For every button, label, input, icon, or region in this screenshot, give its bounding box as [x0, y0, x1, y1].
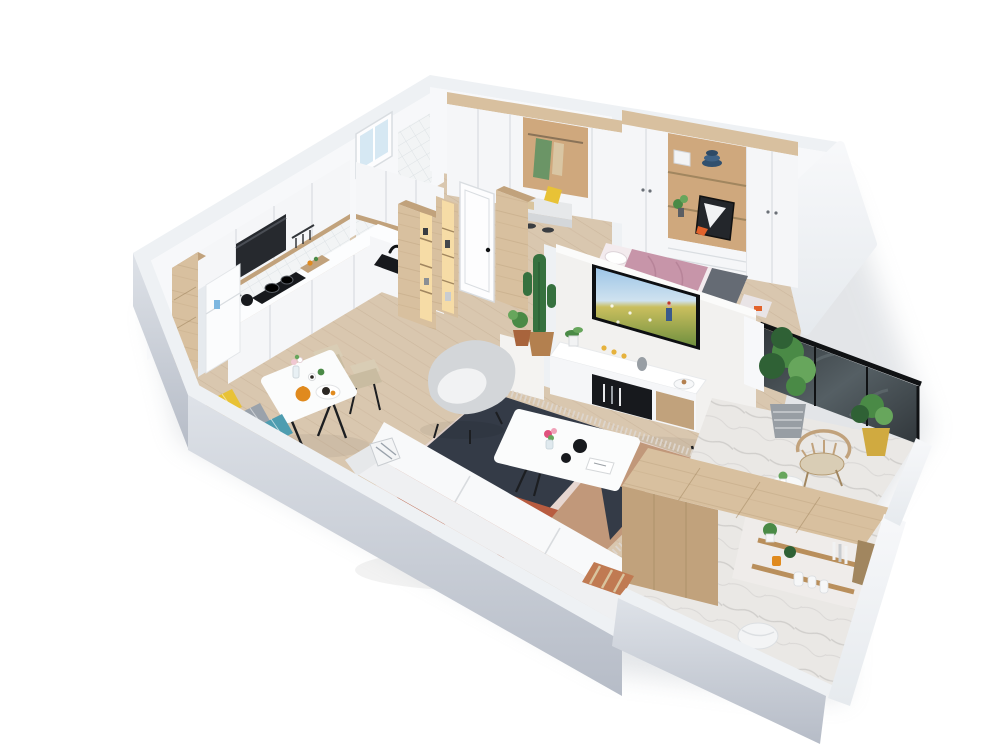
flower-vase: [293, 366, 299, 378]
apartment-render-canvas: [0, 0, 1000, 750]
hall-partition: [436, 182, 536, 318]
hanging-clothes-beige: [552, 142, 564, 176]
black-bowl: [573, 439, 587, 453]
shelf-plant: [784, 546, 796, 558]
lit-shelf-column: [436, 196, 458, 318]
hanging-clothes-green: [533, 138, 552, 180]
table-plant: [318, 369, 325, 376]
floorplan-svg: [0, 0, 1000, 750]
white-jar: [794, 572, 803, 586]
orange-cup: [772, 556, 781, 566]
storage-box: [674, 150, 690, 166]
tv-scene-figure: [666, 308, 672, 321]
balcony-pier-wall: [744, 316, 764, 392]
black-bowl: [561, 453, 571, 463]
cactus-pot: [528, 332, 554, 356]
white-jar: [808, 576, 816, 588]
armchair-shadow: [420, 421, 504, 439]
striped-gray-pot: [770, 404, 806, 438]
shoe: [542, 227, 554, 232]
door-handle: [486, 248, 490, 252]
open-closet-niche: [523, 117, 588, 198]
white-interior-door: [460, 182, 494, 302]
wardrobe-display-niche: [668, 133, 746, 282]
white-jar: [820, 580, 828, 593]
